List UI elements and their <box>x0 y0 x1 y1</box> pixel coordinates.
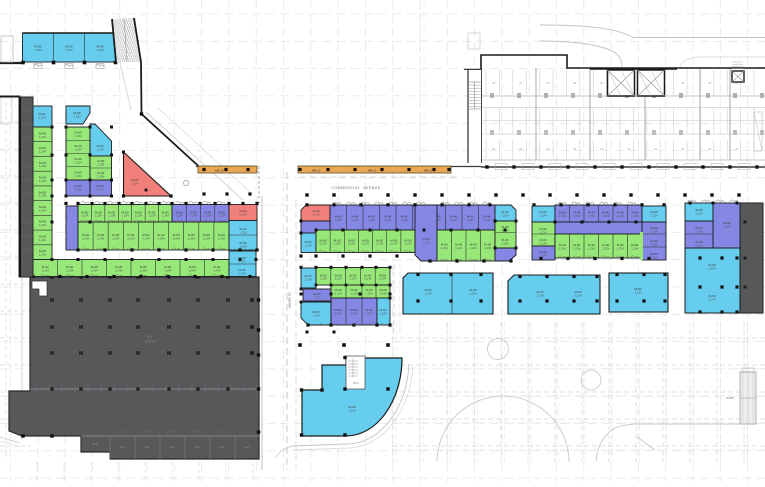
svg-text:1,234: 1,234 <box>364 277 372 281</box>
svg-text:MB-11: MB-11 <box>368 169 377 173</box>
svg-text:1,234: 1,234 <box>501 241 509 245</box>
svg-text:MB-11: MB-11 <box>312 169 321 173</box>
svg-text:1,234 SF: 1,234 SF <box>144 340 156 344</box>
svg-text:1,234: 1,234 <box>573 246 581 250</box>
svg-text:33: 33 <box>735 147 739 151</box>
svg-text:1,234: 1,234 <box>422 240 430 244</box>
svg-text:1,234: 1,234 <box>350 311 358 315</box>
svg-text:1,234: 1,234 <box>650 255 658 259</box>
svg-text:1,234: 1,234 <box>304 277 312 281</box>
svg-text:1,234: 1,234 <box>349 277 357 281</box>
svg-text:1,234: 1,234 <box>157 236 165 240</box>
svg-text:1,234: 1,234 <box>312 313 320 317</box>
svg-text:1,234: 1,234 <box>559 214 567 218</box>
svg-text:1,234: 1,234 <box>162 214 170 218</box>
svg-text:33: 33 <box>519 147 523 151</box>
svg-text:1,234: 1,234 <box>108 214 116 218</box>
svg-text:1,234: 1,234 <box>617 214 625 218</box>
svg-text:1,234: 1,234 <box>74 187 82 191</box>
svg-text:1,234: 1,234 <box>379 311 387 315</box>
svg-text:1,234: 1,234 <box>350 291 358 295</box>
svg-text:1,234: 1,234 <box>539 230 547 234</box>
svg-text:1,234: 1,234 <box>441 246 449 250</box>
svg-text:1,234: 1,234 <box>348 242 356 246</box>
svg-text:1,234: 1,234 <box>97 236 105 240</box>
svg-text:1,234: 1,234 <box>112 236 120 240</box>
svg-text:stall: stall <box>145 445 150 449</box>
svg-text:33: 33 <box>492 81 496 85</box>
svg-text:1,234: 1,234 <box>650 229 658 233</box>
svg-text:33: 33 <box>627 147 631 151</box>
svg-text:RAMP: RAMP <box>727 396 735 400</box>
svg-text:1,234: 1,234 <box>135 214 143 218</box>
svg-text:1,234: 1,234 <box>173 236 181 240</box>
svg-text:1,234: 1,234 <box>424 291 432 295</box>
svg-text:1,234: 1,234 <box>631 246 639 250</box>
svg-text:1,234: 1,234 <box>335 277 343 281</box>
svg-text:1,234: 1,234 <box>401 218 409 222</box>
svg-text:1,234: 1,234 <box>142 236 150 240</box>
svg-text:1,234: 1,234 <box>127 236 135 240</box>
svg-text:1,234: 1,234 <box>312 212 320 216</box>
svg-text:1,234: 1,234 <box>42 268 50 272</box>
svg-text:1,234: 1,234 <box>39 238 47 242</box>
svg-text:P-1: P-1 <box>148 335 153 339</box>
svg-text:1,234: 1,234 <box>351 218 359 222</box>
svg-text:33: 33 <box>519 81 523 85</box>
svg-text:1,234: 1,234 <box>39 164 47 168</box>
svg-text:33: 33 <box>573 81 577 85</box>
svg-text:1,234: 1,234 <box>239 244 247 248</box>
svg-text:1,234: 1,234 <box>384 218 392 222</box>
svg-text:MB-10: MB-10 <box>215 169 224 173</box>
svg-text:1,234: 1,234 <box>617 246 625 250</box>
svg-text:1,234: 1,234 <box>650 213 658 217</box>
svg-text:33: 33 <box>546 81 550 85</box>
svg-text:1,234: 1,234 <box>695 243 703 247</box>
svg-text:1,234: 1,234 <box>602 214 610 218</box>
svg-text:1,234: 1,234 <box>39 149 47 153</box>
svg-text:1,234: 1,234 <box>455 246 463 250</box>
svg-text:1,234: 1,234 <box>91 268 99 272</box>
svg-text:1,234: 1,234 <box>115 268 123 272</box>
svg-text:1,234: 1,234 <box>74 161 82 165</box>
svg-text:ST-1: ST-1 <box>353 381 359 385</box>
svg-text:1,234: 1,234 <box>74 134 82 138</box>
svg-text:1,234: 1,234 <box>97 162 105 166</box>
svg-text:1,234: 1,234 <box>66 268 74 272</box>
svg-text:1,234: 1,234 <box>74 147 82 151</box>
svg-text:33: 33 <box>600 147 604 151</box>
svg-text:1,234: 1,234 <box>695 229 703 233</box>
svg-text:1,234: 1,234 <box>559 246 567 250</box>
svg-text:1,234: 1,234 <box>190 214 198 218</box>
svg-text:1,234: 1,234 <box>218 214 226 218</box>
svg-text:1,234: 1,234 <box>348 408 356 412</box>
svg-text:1,234: 1,234 <box>470 246 478 250</box>
svg-text:33: 33 <box>546 147 550 151</box>
svg-text:33: 33 <box>681 147 685 151</box>
svg-text:1,234: 1,234 <box>121 214 129 218</box>
svg-text:1,234: 1,234 <box>365 311 373 315</box>
svg-text:1,234: 1,234 <box>213 268 221 272</box>
svg-text:1,234: 1,234 <box>238 271 246 275</box>
svg-text:1,234: 1,234 <box>334 291 342 295</box>
svg-text:1,234: 1,234 <box>39 179 47 183</box>
svg-text:1,234: 1,234 <box>81 214 89 218</box>
svg-text:1,234: 1,234 <box>304 243 312 247</box>
svg-text:1,234: 1,234 <box>188 236 196 240</box>
svg-text:1,234: 1,234 <box>708 297 716 301</box>
svg-text:1,234: 1,234 <box>631 214 639 218</box>
svg-text:stall: stall <box>195 445 200 449</box>
svg-text:33: 33 <box>708 81 712 85</box>
svg-text:1,234: 1,234 <box>218 236 226 240</box>
svg-text:1,234: 1,234 <box>148 214 156 218</box>
svg-text:1,234: 1,234 <box>140 268 148 272</box>
svg-text:1,234: 1,234 <box>376 242 384 246</box>
svg-text:1,234: 1,234 <box>319 242 327 246</box>
svg-text:1,234: 1,234 <box>74 174 82 178</box>
svg-text:1,234: 1,234 <box>539 241 547 245</box>
svg-text:W-1: W-1 <box>92 442 98 446</box>
svg-text:1,234: 1,234 <box>450 218 458 222</box>
svg-text:stall: stall <box>120 445 125 449</box>
svg-text:1,234: 1,234 <box>239 212 247 216</box>
svg-text:1,234: 1,234 <box>469 291 477 295</box>
svg-text:1,234: 1,234 <box>574 293 582 297</box>
svg-text:33: 33 <box>600 81 604 85</box>
svg-text:stall: stall <box>170 445 175 449</box>
svg-text:1,234: 1,234 <box>362 242 370 246</box>
svg-text:33: 33 <box>654 147 658 151</box>
svg-text:1,234: 1,234 <box>335 218 343 222</box>
svg-text:HENRY ST: HENRY ST <box>288 292 292 308</box>
svg-text:1,234: 1,234 <box>539 213 547 217</box>
svg-text:1,234: 1,234 <box>39 135 47 139</box>
svg-text:1,234: 1,234 <box>390 242 398 246</box>
svg-text:1,234: 1,234 <box>65 48 73 52</box>
svg-text:1,234: 1,234 <box>82 236 90 240</box>
svg-text:1,234: 1,234 <box>483 218 491 222</box>
svg-text:COMMERCIAL AVENUE: COMMERCIAL AVENUE <box>331 186 380 190</box>
svg-text:1,234: 1,234 <box>536 293 544 297</box>
svg-text:1,234: 1,234 <box>334 242 342 246</box>
svg-text:MB-11: MB-11 <box>424 169 433 173</box>
svg-text:1,234: 1,234 <box>404 242 412 246</box>
svg-text:1,234: 1,234 <box>96 147 104 151</box>
svg-text:1,234: 1,234 <box>588 246 596 250</box>
svg-text:1,234: 1,234 <box>602 246 610 250</box>
svg-text:1,234: 1,234 <box>39 208 47 212</box>
svg-text:1,234: 1,234 <box>189 268 197 272</box>
svg-text:1,234: 1,234 <box>39 253 47 257</box>
svg-text:1,234: 1,234 <box>379 291 387 295</box>
svg-text:1,234: 1,234 <box>96 187 104 191</box>
svg-text:stall: stall <box>245 445 250 449</box>
svg-text:1,234: 1,234 <box>368 218 376 222</box>
svg-text:1,234: 1,234 <box>39 194 47 198</box>
svg-text:1,234: 1,234 <box>96 48 104 52</box>
svg-text:33: 33 <box>573 147 577 151</box>
svg-text:1,234: 1,234 <box>313 295 321 299</box>
svg-text:1,234: 1,234 <box>38 115 46 119</box>
svg-text:1,234: 1,234 <box>723 224 731 228</box>
svg-text:1,234: 1,234 <box>573 214 581 218</box>
svg-text:1,234: 1,234 <box>204 214 212 218</box>
svg-text:1,234: 1,234 <box>131 181 139 185</box>
svg-text:1,234: 1,234 <box>320 277 328 281</box>
svg-text:1,234: 1,234 <box>334 311 342 315</box>
svg-text:1,234: 1,234 <box>650 242 658 246</box>
svg-text:1,234: 1,234 <box>95 214 103 218</box>
svg-text:1,234: 1,234 <box>365 291 373 295</box>
svg-text:1,234: 1,234 <box>695 211 703 215</box>
svg-text:1,234: 1,234 <box>34 48 42 52</box>
svg-text:33: 33 <box>708 147 712 151</box>
svg-text:1,234: 1,234 <box>164 268 172 272</box>
svg-text:1,234: 1,234 <box>708 266 716 270</box>
svg-text:33: 33 <box>681 81 685 85</box>
svg-text:1,234: 1,234 <box>634 290 642 294</box>
svg-text:1,234: 1,234 <box>539 253 547 257</box>
svg-text:1,234: 1,234 <box>239 230 247 234</box>
svg-text:1,234: 1,234 <box>467 218 475 222</box>
svg-text:1,234: 1,234 <box>588 214 596 218</box>
svg-text:1,234: 1,234 <box>379 277 387 281</box>
svg-text:33: 33 <box>492 147 496 151</box>
svg-text:1,234: 1,234 <box>203 236 211 240</box>
svg-text:1,234: 1,234 <box>97 174 105 178</box>
svg-text:1,234: 1,234 <box>39 223 47 227</box>
svg-text:1,234: 1,234 <box>176 214 184 218</box>
svg-text:1,234: 1,234 <box>501 213 509 217</box>
svg-text:1,234: 1,234 <box>484 246 492 250</box>
svg-text:stall: stall <box>220 445 225 449</box>
svg-text:1,234: 1,234 <box>73 114 81 118</box>
